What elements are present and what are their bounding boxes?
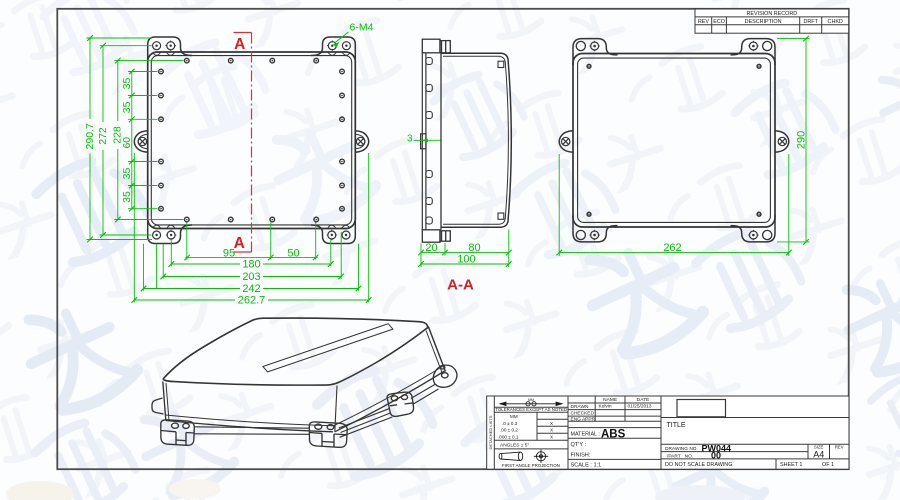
svg-text:95: 95 — [223, 247, 235, 259]
svg-text:290.7: 290.7 — [84, 123, 96, 149]
svg-text:FINISH:: FINISH: — [571, 452, 591, 458]
svg-text:.00 ± 0.2: .00 ± 0.2 — [500, 428, 518, 433]
svg-text:01/25/2013: 01/25/2013 — [628, 404, 652, 410]
svg-text:272: 272 — [97, 127, 109, 145]
svg-text:.000 ± 0.1: .000 ± 0.1 — [498, 434, 519, 439]
svg-text:DATE: DATE — [637, 397, 649, 403]
svg-text:DRAWING NO.: DRAWING NO. — [665, 446, 698, 452]
svg-text:203: 203 — [242, 271, 260, 283]
svg-text:A: A — [234, 235, 245, 252]
svg-text:50: 50 — [287, 247, 299, 259]
svg-text:35: 35 — [121, 78, 133, 90]
svg-text:A4: A4 — [813, 450, 824, 460]
svg-text:TOLERANCES EXCEPT AS NOTED: TOLERANCES EXCEPT AS NOTED — [495, 407, 567, 412]
svg-text:CHKD: CHKD — [828, 19, 843, 25]
svg-text:262: 262 — [663, 242, 681, 254]
svg-text:CHECKED: CHECKED — [571, 411, 595, 417]
svg-text:/PART NO.: /PART NO. — [667, 453, 693, 459]
svg-text:80: 80 — [468, 242, 480, 254]
svg-text:DETACHED LISTS: DETACHED LISTS — [488, 415, 493, 449]
svg-text:.0 ± 0.3: .0 ± 0.3 — [502, 421, 518, 426]
svg-text:ECO: ECO — [713, 19, 725, 25]
svg-text:SCALE : 1:1: SCALE : 1:1 — [571, 463, 602, 469]
svg-text:OF 1: OF 1 — [822, 462, 834, 468]
svg-text:TITLE: TITLE — [667, 422, 686, 429]
svg-text:QT'Y :: QT'Y : — [571, 442, 587, 448]
svg-text:242: 242 — [242, 283, 260, 295]
svg-text:A: A — [234, 36, 245, 53]
svg-text:DRAWN: DRAWN — [571, 404, 589, 410]
svg-text:6-M4: 6-M4 — [350, 22, 374, 34]
svg-text:20: 20 — [425, 242, 437, 254]
svg-text:NAME: NAME — [603, 397, 617, 403]
svg-text:X: X — [550, 428, 553, 433]
svg-text:35: 35 — [121, 101, 133, 113]
svg-text:60: 60 — [121, 137, 133, 149]
svg-text:DESCRIPTION: DESCRIPTION — [745, 19, 782, 25]
svg-text:REV: REV — [698, 19, 709, 25]
svg-text:ENG APPR: ENG APPR — [571, 417, 596, 423]
svg-text:3: 3 — [407, 133, 413, 144]
svg-text:DRFT: DRFT — [804, 19, 819, 25]
svg-text:REV: REV — [835, 445, 844, 450]
svg-text:35: 35 — [121, 168, 133, 180]
svg-text:35: 35 — [121, 191, 133, 203]
svg-text:290: 290 — [796, 131, 808, 149]
svg-text:MM: MM — [528, 398, 534, 402]
svg-text:262.7: 262.7 — [238, 295, 266, 307]
svg-text:Kelvin: Kelvin — [599, 404, 612, 410]
svg-text:X: X — [550, 434, 553, 439]
svg-text:X: X — [550, 421, 553, 426]
svg-text:180: 180 — [242, 259, 260, 271]
svg-text:A-A: A-A — [447, 277, 474, 294]
svg-text:ANGLES ± 5°: ANGLES ± 5° — [500, 443, 529, 449]
svg-text:100: 100 — [457, 254, 475, 266]
svg-text:ABS: ABS — [601, 429, 626, 441]
svg-text:DO NOT SCALE DRAWING: DO NOT SCALE DRAWING — [665, 462, 732, 468]
svg-text:SHEET 1: SHEET 1 — [780, 462, 802, 468]
svg-text:FIRST ANGLE PROJECTION: FIRST ANGLE PROJECTION — [502, 463, 560, 468]
svg-text:MATERIAL :: MATERIAL : — [571, 432, 600, 438]
svg-text:00: 00 — [711, 451, 721, 461]
svg-text:REVISION RECORD: REVISION RECORD — [746, 11, 797, 17]
svg-text:MM: MM — [510, 414, 518, 419]
